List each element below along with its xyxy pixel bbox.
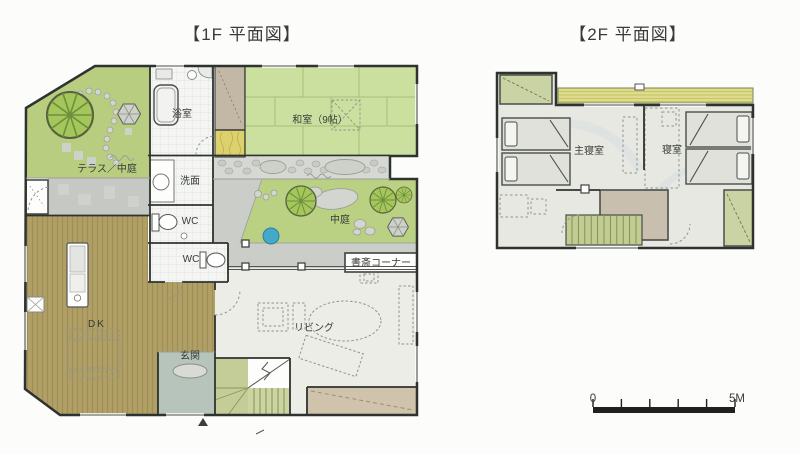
step-stone bbox=[260, 161, 286, 174]
entrance-stone bbox=[173, 364, 207, 378]
dk-label: DK bbox=[88, 319, 106, 330]
hex-stone-icon bbox=[388, 218, 409, 236]
toilet-lower bbox=[200, 252, 225, 268]
balcony-post bbox=[635, 84, 644, 90]
tree-icon bbox=[396, 187, 412, 203]
washroom-label: 洗面 bbox=[180, 175, 200, 187]
tree-icon bbox=[286, 186, 316, 216]
terrace-label: テラス／中庭 bbox=[77, 162, 137, 175]
floorplan-canvas: 【1F 平面図】 【2F 平面図】 bbox=[0, 0, 800, 454]
stair-landing bbox=[215, 358, 248, 415]
scale-bar: 0 5M bbox=[590, 393, 745, 413]
terrace-storage bbox=[26, 180, 48, 214]
bedroom-label: 寝室 bbox=[662, 143, 682, 156]
living-label: リビング bbox=[294, 321, 334, 334]
shower-drain bbox=[188, 71, 197, 80]
bath-label: 浴室 bbox=[172, 107, 192, 120]
japanese-room bbox=[245, 66, 417, 156]
wc-lower-label: WC bbox=[183, 254, 200, 265]
wall-post bbox=[581, 185, 589, 193]
ground-tick bbox=[256, 430, 264, 434]
floor1-title: 【1F 平面図】 bbox=[183, 25, 301, 44]
study-corner-label: 書斎コーナー bbox=[351, 256, 411, 269]
step-stone bbox=[325, 160, 365, 175]
wc-upper-label: WC bbox=[182, 216, 199, 227]
cooktop bbox=[70, 246, 85, 272]
tree-icon bbox=[370, 187, 396, 213]
scale-start-label: 0 bbox=[590, 393, 596, 405]
garden-terrace-area bbox=[26, 66, 152, 215]
scale-end-label: 5M bbox=[729, 393, 745, 405]
bath-shelf bbox=[156, 69, 172, 79]
tree-icon bbox=[47, 92, 93, 138]
sink bbox=[153, 174, 169, 190]
entrance-label: 玄関 bbox=[180, 349, 200, 362]
courtyard-label: 中庭 bbox=[330, 213, 350, 226]
scale-bar-rule bbox=[593, 407, 735, 413]
balcony bbox=[558, 84, 753, 103]
floor1-plan: 浴室 和室（9帖） テラス／中庭 洗面 WC WC 中庭 書斎コーナー DK 玄… bbox=[23, 64, 419, 434]
japanese-room-label: 和室（9帖） bbox=[292, 113, 348, 126]
staircase-1f bbox=[215, 358, 290, 415]
counter bbox=[70, 274, 85, 292]
floor2-title: 【2F 平面図】 bbox=[569, 25, 687, 44]
closet-strip bbox=[215, 66, 245, 130]
kitchen-sink bbox=[74, 295, 80, 301]
master-bedroom-label: 主寝室 bbox=[574, 144, 604, 157]
hex-stone-icon bbox=[118, 104, 141, 124]
pond bbox=[263, 228, 279, 244]
entrance-arrow-icon bbox=[198, 418, 208, 426]
floor2-plan: 主寝室 寝室 bbox=[495, 73, 755, 250]
scale-ticks bbox=[593, 399, 735, 407]
courtyard-area bbox=[213, 157, 417, 268]
